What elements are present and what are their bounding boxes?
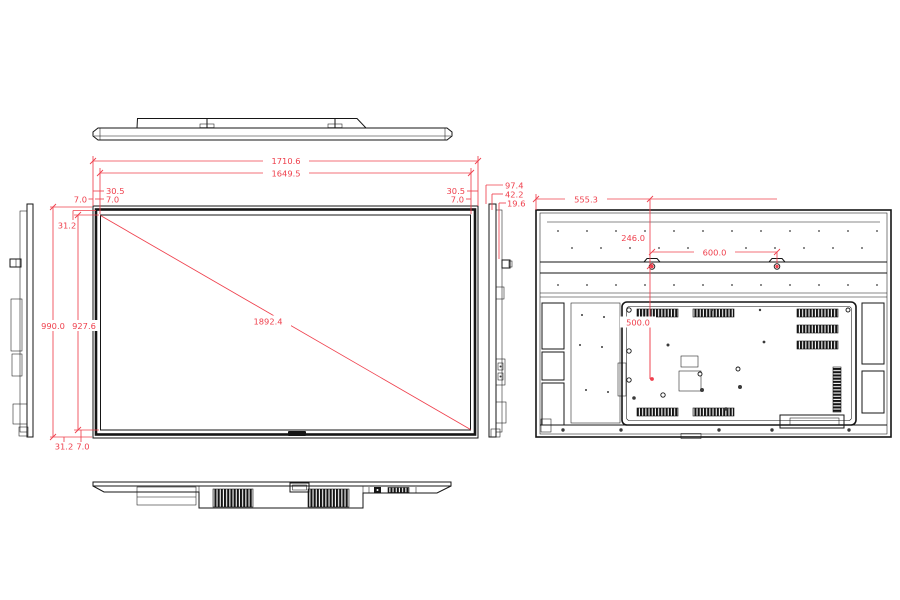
rear-left-column: [542, 303, 620, 425]
view-side-right: [489, 204, 512, 437]
vent-slot: [637, 408, 678, 416]
bottom-home-button: [290, 483, 309, 492]
mount-hole-marker: [650, 377, 654, 381]
view-rear: [536, 210, 891, 439]
dim-mount-from-left-label: 555.3: [574, 195, 598, 205]
rear-bottom-strip: [540, 415, 887, 439]
dim-active-width-label: 1649.5: [271, 169, 300, 179]
dim-bottom-edge-label: 7.0: [76, 442, 89, 452]
left-side-panel: [27, 204, 33, 437]
vent-slot: [637, 309, 678, 317]
dim-top-bezel-label: 31.2: [58, 221, 76, 231]
drawing-sheet: 1710.6 1649.5 30.5 7.0 7.0 30.5 7.0 990.…: [0, 0, 900, 600]
vent-slot: [693, 309, 734, 317]
rear-right-column: [862, 303, 884, 413]
dimension-drawing-canvas: 1710.6 1649.5 30.5 7.0 7.0 30.5 7.0 990.…: [0, 0, 900, 600]
side-dimensions: 97.4 42.2 19.6: [486, 181, 525, 260]
front-dimensions: 1710.6 1649.5 30.5 7.0 7.0 30.5 7.0 990.…: [40, 156, 481, 452]
dim-top-edge-left-label: 7.0: [106, 195, 119, 205]
rear-mount-rail: [540, 259, 887, 274]
dim-top-edge-left-outer-label: 7.0: [74, 195, 87, 205]
rear-connector-strip: [833, 367, 841, 412]
speaker-grille-right: [308, 489, 349, 507]
dim-diagonal-label: 1892.4: [253, 317, 282, 327]
vent-slot: [693, 408, 734, 416]
dim-active-height-label: 927.6: [72, 321, 96, 331]
dim-panel-depth-label: 19.6: [507, 199, 525, 209]
view-top: [93, 119, 452, 141]
dim-overall-width-label: 1710.6: [271, 156, 300, 166]
dim-mount-from-top-label: 246.0: [621, 233, 645, 243]
view-bottom: [93, 482, 451, 508]
vent-slot: [797, 341, 838, 349]
rear-screw-rows: [557, 230, 878, 286]
rear-io-recess: [780, 415, 844, 428]
dim-top-edge-right-label: 7.0: [451, 195, 464, 205]
rear-label-small: [681, 356, 698, 367]
dim-mount-vertical-label: 500.0: [626, 318, 650, 328]
vent-slot: [797, 325, 838, 333]
vent-slot: [797, 309, 838, 317]
dim-overall-height-label: 990.0: [41, 321, 65, 331]
top-back-cover: [137, 119, 366, 129]
bottom-terminal-block: [388, 488, 409, 493]
right-side-panel: [489, 204, 496, 437]
view-side-left: [10, 204, 33, 437]
bottom-bracket: [137, 487, 196, 505]
dim-bottom-bezel-label: 31.2: [55, 442, 73, 452]
dim-mount-horizontal-label: 600.0: [703, 248, 727, 258]
left-side-stub: [10, 259, 21, 267]
front-home-button: [288, 431, 306, 436]
mount-hole-marker: [650, 265, 653, 268]
speaker-grille-left: [213, 489, 253, 507]
mount-hole-marker: [775, 265, 778, 268]
